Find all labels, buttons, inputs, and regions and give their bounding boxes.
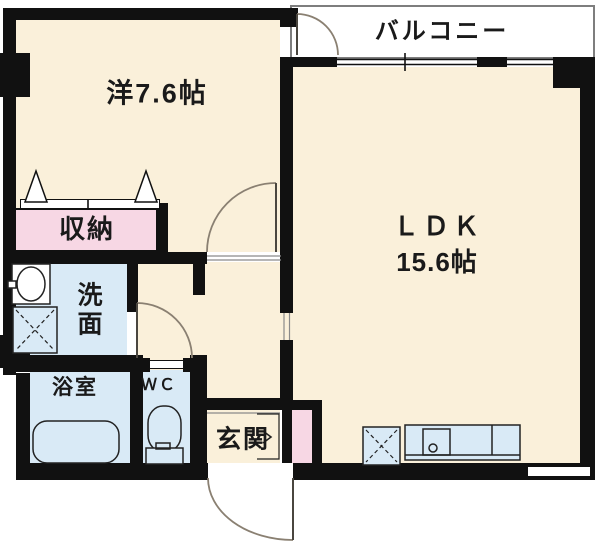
balcony-label: バルコニー <box>375 18 510 46</box>
hall-ldk-opening-floor <box>280 313 293 340</box>
wall-stub <box>193 262 205 295</box>
ldk-label: ＬＤＫ <box>393 212 483 242</box>
shoe-cabinet <box>292 410 312 465</box>
western-room-label: 洋7.6帖 <box>106 78 208 109</box>
closet-door-track <box>20 199 160 209</box>
wall <box>280 8 298 27</box>
wall-pillar <box>0 53 30 97</box>
washroom-label-line1: 洗 <box>77 281 102 310</box>
wall <box>280 57 293 313</box>
wall <box>280 340 293 402</box>
wall <box>3 252 207 264</box>
floor-plan: 洋7.6帖 バルコニー ＬＤＫ 15.6帖 収納 洗 面 浴室 ＷＣ 玄関 <box>0 0 600 547</box>
wall <box>3 8 293 20</box>
wall-corner <box>553 57 595 88</box>
wall <box>207 398 280 410</box>
wc-doorway <box>150 360 183 369</box>
wall <box>10 355 130 372</box>
ldk-size-label: 15.6帖 <box>396 248 478 278</box>
wall <box>580 58 595 480</box>
bottom-window <box>528 467 590 476</box>
wall <box>312 410 322 467</box>
washroom-label-line2: 面 <box>77 310 102 339</box>
wall <box>278 400 322 410</box>
wall <box>183 358 207 372</box>
storage-label: 収納 <box>59 215 115 245</box>
wall <box>127 262 138 312</box>
wall <box>158 203 168 252</box>
front-door-opening <box>208 463 293 480</box>
wc-label: ＷＣ <box>141 377 177 395</box>
wall <box>477 57 507 67</box>
entrance-label: 玄関 <box>216 426 270 455</box>
front-door-icon <box>208 478 293 540</box>
wall <box>130 358 150 372</box>
wall <box>282 410 292 467</box>
bathroom-label: 浴室 <box>52 376 98 400</box>
wall <box>16 463 595 480</box>
washroom-label: 洗 面 <box>77 281 102 339</box>
